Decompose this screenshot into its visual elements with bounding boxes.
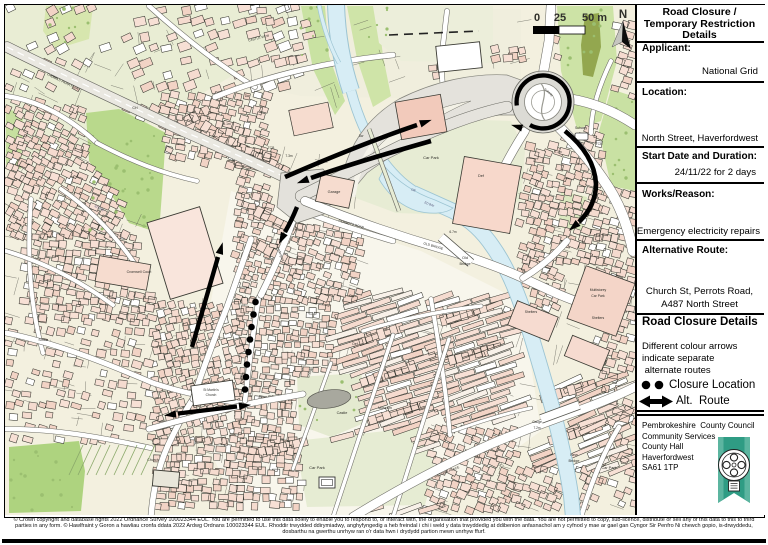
svg-text:N: N <box>619 9 627 21</box>
svg-text:St Martin's: St Martin's <box>203 388 219 392</box>
svg-text:Bridge: Bridge <box>460 262 471 266</box>
svg-text:New: New <box>570 453 578 457</box>
svg-text:Car Park: Car Park <box>309 465 325 470</box>
svg-text:T1: T1 <box>167 366 171 370</box>
svg-text:7.2m: 7.2m <box>533 426 540 430</box>
svg-text:Church: Church <box>147 458 159 462</box>
svg-text:50 m: 50 m <box>582 12 607 24</box>
svg-text:7.3m: 7.3m <box>285 154 293 158</box>
svg-text:Dw: Dw <box>359 134 364 138</box>
svg-text:Shelters: Shelters <box>592 316 605 320</box>
svg-text:Shelters: Shelters <box>525 310 538 314</box>
svg-text:Def: Def <box>478 174 485 178</box>
svg-text:6.7m: 6.7m <box>449 230 457 234</box>
svg-text:Multistorey: Multistorey <box>590 288 607 292</box>
svg-text:Bridge: Bridge <box>569 459 580 463</box>
svg-text:Church: Church <box>206 393 217 397</box>
svg-text:9.1m: 9.1m <box>223 122 231 126</box>
svg-text:7.3m: 7.3m <box>554 150 562 154</box>
svg-text:CH: CH <box>132 106 138 110</box>
svg-text:Garage: Garage <box>328 190 341 194</box>
svg-text:Def: Def <box>352 342 357 346</box>
svg-text:0: 0 <box>534 12 540 24</box>
svg-text:TCB: TCB <box>596 142 604 146</box>
svg-text:Old: Old <box>462 256 468 260</box>
svg-text:Cromwell Court: Cromwell Court <box>127 270 152 274</box>
svg-text:Castle: Castle <box>337 411 348 415</box>
svg-text:Gauge: Gauge <box>532 420 542 424</box>
svg-text:Car Park: Car Park <box>602 466 617 470</box>
svg-text:Sinks: Sinks <box>38 338 47 342</box>
svg-text:Museum: Museum <box>378 406 392 410</box>
svg-text:TCB: TCB <box>268 146 276 150</box>
svg-text:Car Park: Car Park <box>423 155 439 160</box>
svg-text:Car Park: Car Park <box>591 294 605 298</box>
svg-text:Dw: Dw <box>245 94 250 98</box>
svg-text:25: 25 <box>554 12 566 24</box>
svg-text:Subway: Subway <box>575 126 587 130</box>
